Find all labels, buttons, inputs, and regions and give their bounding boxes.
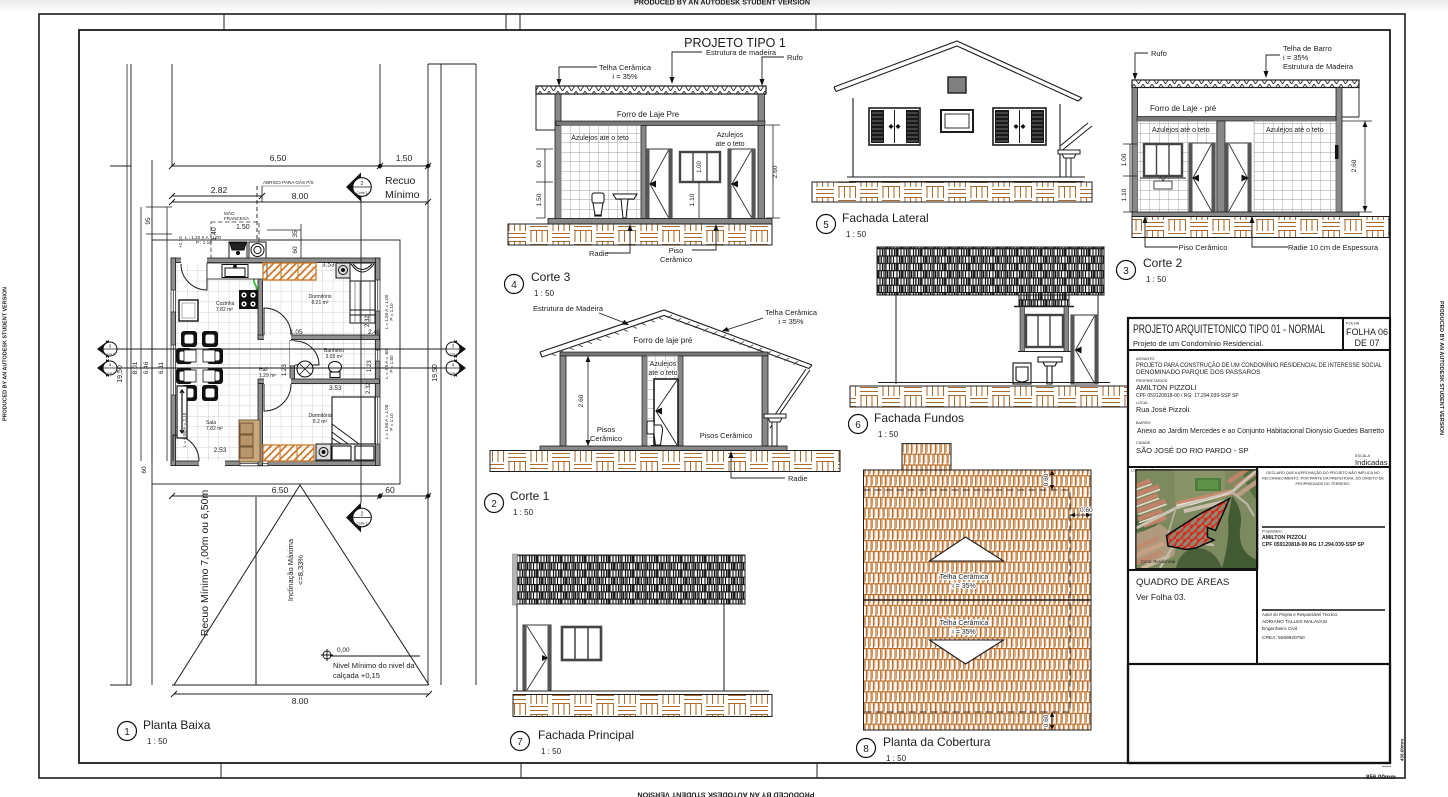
svg-text:i = 35%: i = 35% [778, 317, 804, 326]
svg-text:856.00mm: 856.00mm [1366, 774, 1396, 781]
svg-text:+2.10: +2.10 [178, 236, 183, 248]
svg-text:PROJETO ARQUITETONICO TIPO 01: PROJETO ARQUITETONICO TIPO 01 - NORMAL [1133, 322, 1325, 336]
svg-text:i = 35%: i = 35% [1283, 53, 1309, 62]
svg-text:Forro de Laje - pré: Forro de Laje - pré [1150, 104, 1217, 113]
svg-text:Proprietário:: Proprietário: [1262, 530, 1283, 534]
svg-text:Azulejos: Azulejos [717, 132, 744, 139]
svg-text:1.00: 1.00 [1121, 153, 1128, 166]
svg-text:Pisos Cerâmico: Pisos Cerâmico [700, 431, 753, 440]
svg-text:ate o teto: ate o teto [648, 370, 677, 377]
svg-text:Telha Cerâmica: Telha Cerâmica [940, 620, 989, 627]
svg-text:Projeto de um Condomínio Resid: Projeto de um Condomínio Residencial. [1133, 339, 1263, 348]
svg-text:i = 35%: i = 35% [612, 72, 638, 81]
svg-text:Cond. Residencial: Cond. Residencial [1141, 559, 1175, 564]
svg-text:1 : 50: 1 : 50 [534, 289, 555, 298]
svg-text:0.60: 0.60 [1043, 473, 1050, 486]
svg-text:ASSUNTO: ASSUNTO [1136, 357, 1154, 361]
svg-text:ADRIANO TALLES MALAVASI: ADRIANO TALLES MALAVASI [1262, 619, 1327, 625]
svg-text:Radie: Radie [788, 474, 808, 483]
svg-text:Fachada Lateral: Fachada Lateral [842, 211, 929, 225]
svg-text:BAIRRO: BAIRRO [1136, 421, 1151, 425]
svg-text:Azulejos: Azulejos [650, 361, 677, 368]
svg-text:0.60: 0.60 [1043, 714, 1050, 727]
svg-text:FOLHA: FOLHA [1346, 321, 1360, 326]
svg-text:1.00: 1.00 [697, 161, 703, 173]
svg-text:2.60: 2.60 [1351, 159, 1358, 172]
svg-text:Piso: Piso [669, 246, 684, 255]
svg-text:FOLHA 06: FOLHA 06 [1346, 327, 1388, 337]
svg-text:DENOMINADO PARQUE DOS PASSARO: DENOMINADO PARQUE DOS PASSAROS [1136, 369, 1260, 376]
svg-text:1.10: 1.10 [689, 193, 696, 206]
svg-text:Azulejos até o teto: Azulejos até o teto [1152, 127, 1210, 134]
svg-text:1 : 50: 1 : 50 [513, 508, 534, 517]
svg-text:Radie 10 cm de Espessura: Radie 10 cm de Espessura [1288, 243, 1379, 252]
svg-text:3.53: 3.53 [322, 262, 335, 269]
svg-text:Corte 3: Corte 3 [531, 270, 571, 284]
svg-text:3.05 m²: 3.05 m² [326, 354, 343, 360]
svg-text:FRANCESA: FRANCESA [224, 216, 250, 221]
svg-text:PROJETO PARA CONSTRUÇÃO DE UM: PROJETO PARA CONSTRUÇÃO DE UM CONDOMÍNIO… [1136, 360, 1382, 369]
svg-text:Planta da Cobertura: Planta da Cobertura [883, 735, 991, 749]
svg-text:438.00mm: 438.00mm [1400, 739, 1405, 761]
svg-text:L = 0.80 A = 2.10: L = 0.80 A = 2.10 [182, 412, 187, 447]
svg-text:60: 60 [385, 485, 395, 495]
svg-text:1.50: 1.50 [536, 193, 543, 206]
svg-text:PRODUCED BY AN AUTODESK STUDEN: PRODUCED BY AN AUTODESK STUDENT VERSION [3, 287, 9, 421]
svg-text:1 : 50: 1 : 50 [147, 737, 168, 746]
svg-text:<=8,33%: <=8,33% [296, 555, 305, 585]
svg-text:Corte 3: Corte 3 [105, 371, 115, 375]
svg-text:0,00: 0,00 [337, 647, 350, 654]
svg-text:Azulejos até o teto: Azulejos até o teto [1266, 127, 1324, 134]
svg-text:1: 1 [124, 727, 130, 738]
svg-text:Rufo: Rufo [787, 53, 803, 62]
svg-text:8.2 m²: 8.2 m² [313, 419, 328, 425]
svg-text:2.48: 2.48 [368, 329, 381, 336]
svg-text:calçada +0,15: calçada +0,15 [333, 671, 380, 680]
svg-text:Estrutura de Madeira: Estrutura de Madeira [1283, 62, 1354, 71]
svg-text:1.50: 1.50 [396, 153, 413, 163]
svg-text:2.60: 2.60 [772, 165, 779, 178]
svg-text:Fachada Principal: Fachada Principal [538, 728, 634, 742]
svg-text:3: 3 [1123, 266, 1129, 277]
svg-text:CPF 059120818-00 RG 17.294.039: CPF 059120818-00 RG 17.294.039-SSP SP [1262, 542, 1365, 548]
svg-text:i = 35%: i = 35% [952, 629, 976, 636]
svg-text:Recuo: Recuo [385, 175, 416, 187]
svg-text:Cerâmico: Cerâmico [660, 255, 692, 264]
svg-text:2.32: 2.32 [365, 315, 371, 327]
svg-text:1.23: 1.23 [282, 364, 288, 376]
svg-text:CPF 059120818-00 / RG: 17.294.: CPF 059120818-00 / RG: 17.294.039-SSP SP [1136, 393, 1239, 399]
svg-text:Engenheiro Civil.: Engenheiro Civil. [1262, 626, 1298, 632]
svg-text:PRODUCED BY AN AUTODESK STUDEN: PRODUCED BY AN AUTODESK STUDENT VERSION [634, 0, 810, 7]
svg-text:1.23: 1.23 [367, 360, 373, 372]
svg-text:Ver Folha 03.: Ver Folha 03. [1136, 592, 1186, 602]
svg-text:Corte 2: Corte 2 [1143, 256, 1183, 270]
svg-text:PRODUCED BY AN AUTODESK STUDEN: PRODUCED BY AN AUTODESK STUDENT VERSION [638, 791, 815, 797]
svg-text:P = 1.10: P = 1.10 [389, 413, 394, 431]
svg-text:RECONHECIMENTO, POR PARTE DA P: RECONHECIMENTO, POR PARTE DA PREFEITURA,… [1262, 477, 1384, 481]
svg-text:Indicadas: Indicadas [1355, 458, 1388, 467]
svg-text:i = 35%: i = 35% [952, 583, 976, 590]
svg-text:Inclinação Máxima: Inclinação Máxima [286, 538, 295, 601]
svg-text:1 : 50: 1 : 50 [886, 754, 907, 763]
svg-text:8.00: 8.00 [292, 696, 309, 706]
svg-text:2.82: 2.82 [211, 185, 228, 195]
svg-text:6.50: 6.50 [272, 485, 289, 495]
svg-text:7.82 m²: 7.82 m² [216, 307, 233, 313]
svg-text:2: 2 [361, 181, 364, 187]
svg-text:PROPRIEDADE DO TERRENO.: PROPRIEDADE DO TERRENO. [1296, 482, 1351, 486]
svg-text:1 : 50: 1 : 50 [846, 230, 867, 239]
svg-text:Estrutura de Madeira: Estrutura de Madeira [533, 304, 604, 313]
svg-text:DECLARO QUE A APROVAÇÃO DO PRO: DECLARO QUE A APROVAÇÃO DO PROJETO NÃO I… [1266, 470, 1379, 475]
svg-text:Mínimo: Mínimo [385, 189, 420, 201]
svg-text:2.53: 2.53 [214, 447, 227, 454]
svg-text:Azulejos ate o teto: Azulejos ate o teto [571, 135, 629, 142]
svg-text:5: 5 [823, 220, 829, 231]
svg-text:Recuo Mínimo 7,00m ou 6,50m: Recuo Mínimo 7,00m ou 6,50m [199, 490, 211, 637]
svg-text:Rua José Pizzoli.: Rua José Pizzoli. [1136, 405, 1191, 414]
svg-text:Nivel Mínimo do nivel da: Nivel Mínimo do nivel da [333, 661, 416, 670]
svg-text:0.60: 0.60 [1080, 507, 1093, 514]
svg-text:95: 95 [145, 217, 152, 225]
svg-text:1.29 m²: 1.29 m² [259, 373, 276, 379]
svg-text:CREA: 5069920750: CREA: 5069920750 [1262, 635, 1305, 641]
svg-text:2: 2 [361, 512, 364, 518]
svg-text:CIDADE: CIDADE [1136, 441, 1151, 445]
svg-text:P = 1.10: P = 1.10 [389, 303, 394, 321]
svg-text:ate o teto: ate o teto [715, 141, 744, 148]
svg-text:6: 6 [855, 420, 861, 431]
svg-text:7.82 m²: 7.82 m² [206, 426, 223, 432]
svg-text:Telha Cerâmica: Telha Cerâmica [940, 574, 989, 581]
svg-text:SÃO JOSÉ DO RIO PARDO - SP: SÃO JOSÉ DO RIO PARDO - SP [1136, 446, 1249, 455]
svg-text:Planta Baixa: Planta Baixa [143, 718, 211, 732]
svg-text:QUADRO DE ÁREAS: QUADRO DE ÁREAS [1136, 577, 1229, 588]
svg-text:Forro de laje pré: Forro de laje pré [634, 336, 693, 345]
svg-text:35: 35 [292, 230, 299, 238]
svg-text:Cerâmico: Cerâmico [590, 434, 622, 443]
svg-text:1.05: 1.05 [290, 329, 303, 336]
svg-text:2.32: 2.32 [366, 382, 372, 394]
svg-text:19,50: 19,50 [432, 364, 439, 382]
svg-text:Rufo: Rufo [1151, 49, 1167, 58]
svg-text:P = 1.50: P = 1.50 [389, 355, 394, 373]
svg-text:3.53: 3.53 [329, 385, 342, 392]
svg-text:DE 07: DE 07 [1354, 338, 1379, 348]
svg-text:8: 8 [863, 744, 869, 755]
svg-text:AMILTON PIZZOLI: AMILTON PIZZOLI [1136, 383, 1196, 392]
svg-text:8.00: 8.00 [292, 191, 309, 201]
svg-text:P : 1.10: P : 1.10 [196, 240, 212, 245]
svg-text:PRODUCED BY AN AUTODESK STUDEN: PRODUCED BY AN AUTODESK STUDENT VERSION [1438, 301, 1444, 435]
svg-text:6.50: 6.50 [270, 153, 287, 163]
svg-text:1.50: 1.50 [236, 224, 250, 231]
svg-text:60: 60 [141, 466, 148, 474]
svg-text:4: 4 [511, 280, 517, 291]
svg-text:Telha Cerâmica: Telha Cerâmica [765, 308, 818, 317]
svg-text:2.60: 2.60 [578, 394, 585, 407]
svg-text:Telha de Barro: Telha de Barro [1283, 44, 1332, 53]
svg-text:8.21 m²: 8.21 m² [312, 300, 329, 306]
svg-text:60: 60 [292, 246, 299, 254]
svg-text:ABRIGO PARA GÁS P/S: ABRIGO PARA GÁS P/S [263, 179, 314, 185]
svg-text:1 : 50: 1 : 50 [541, 747, 562, 756]
svg-text:Corte 1: Corte 1 [356, 191, 367, 195]
svg-text:Corte 1: Corte 1 [356, 522, 367, 526]
svg-text:1 : 50: 1 : 50 [1146, 275, 1167, 284]
svg-text:Piso Cerâmico: Piso Cerâmico [1179, 243, 1228, 252]
svg-text:Corte 3: Corte 3 [448, 371, 458, 375]
svg-text:Forro de Laje Pre: Forro de Laje Pre [617, 110, 680, 119]
svg-text:60: 60 [536, 160, 543, 168]
svg-text:Autor do Projeto e Responsável: Autor do Projeto e Responsável Técnico: [1262, 612, 1338, 617]
svg-text:2: 2 [491, 499, 497, 510]
svg-text:AMILTON PIZZOLI: AMILTON PIZZOLI [1262, 535, 1307, 541]
svg-text:Pisos: Pisos [597, 425, 616, 434]
svg-text:Estrutura de madeira: Estrutura de madeira [706, 48, 777, 57]
svg-text:Radie: Radie [589, 249, 609, 258]
svg-text:7: 7 [517, 737, 523, 748]
svg-text:1.10: 1.10 [1121, 188, 1128, 201]
svg-text:Telha Cerâmica: Telha Cerâmica [599, 63, 652, 72]
svg-text:Anexo ao Jardim Mercedes e ao: Anexo ao Jardim Mercedes e ao Conjunto H… [1137, 426, 1384, 435]
svg-text:Fachada Fundos: Fachada Fundos [874, 411, 964, 425]
svg-text:Corte 2: Corte 2 [448, 352, 458, 356]
svg-text:Corte 1: Corte 1 [510, 489, 550, 503]
svg-text:1 : 50: 1 : 50 [878, 430, 899, 439]
svg-text:Corte 2: Corte 2 [105, 352, 115, 356]
